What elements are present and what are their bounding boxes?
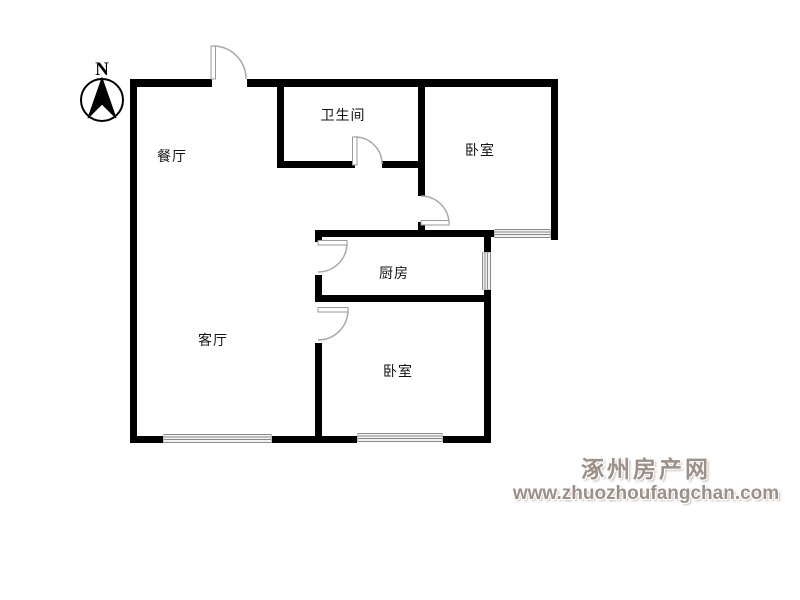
kitchen-door-panel	[318, 241, 347, 246]
floor-plan-canvas: N 餐厅 卫生间 卧室 厨房 客厅 卧室 涿州房产网 www.zhuozhouf…	[0, 0, 800, 600]
bedroom-top-door-panel	[421, 221, 449, 226]
compass-north-label: N	[95, 59, 109, 80]
entry-door-panel	[211, 46, 216, 79]
room-label-bedroom-bottom: 卧室	[383, 361, 413, 381]
watermark-site-url: www.zhuozhoufangchan.com	[513, 484, 779, 503]
room-label-living: 客厅	[198, 330, 228, 350]
room-label-dining: 餐厅	[157, 146, 187, 166]
north-compass: N	[81, 59, 123, 121]
bedroom-bottom-door	[318, 308, 348, 341]
room-label-bedroom-top: 卧室	[465, 140, 495, 160]
north-arrow-icon	[88, 78, 116, 118]
bathroom-door-panel	[353, 137, 358, 165]
room-label-kitchen: 厨房	[379, 263, 409, 283]
kitchen-door	[318, 241, 347, 273]
watermark-site-name: 涿州房产网	[513, 458, 779, 481]
room-label-bathroom: 卫生间	[321, 105, 366, 125]
entry-door	[211, 46, 246, 79]
doors-and-compass-overlay: N	[0, 0, 800, 600]
watermark: 涿州房产网 www.zhuozhoufangchan.com	[513, 458, 779, 503]
bathroom-door	[353, 137, 383, 165]
bedroom-top-door	[421, 196, 449, 225]
bedroom-bottom-door-panel	[318, 308, 348, 313]
